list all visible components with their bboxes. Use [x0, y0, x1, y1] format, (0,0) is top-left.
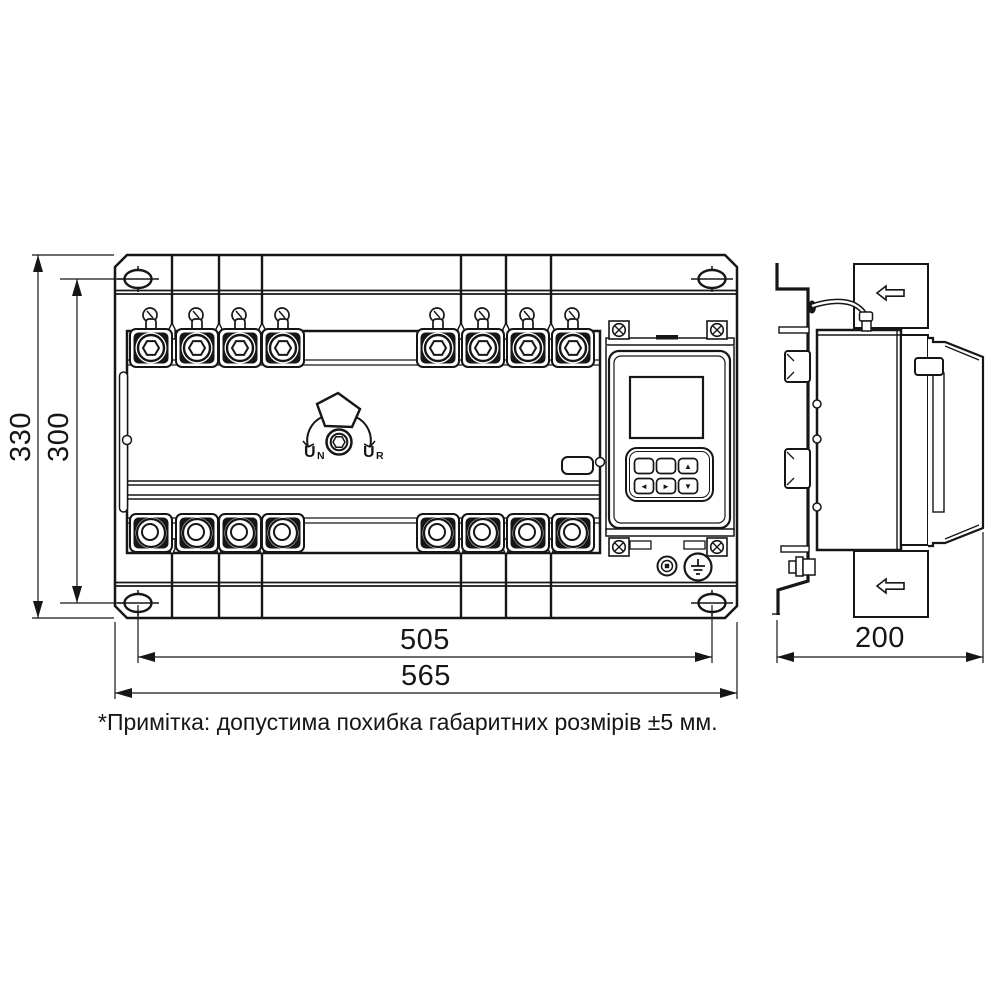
side-view	[772, 263, 983, 617]
screw-icon	[609, 538, 629, 556]
front-view: U N U R	[115, 255, 737, 618]
screw-icon	[707, 321, 727, 339]
terminal-icon	[176, 514, 218, 552]
keypad-button	[635, 459, 654, 474]
mounting-bracket	[772, 263, 815, 615]
terminal-icon	[130, 514, 172, 552]
screw-icon	[609, 321, 629, 339]
dim-label-565: 565	[401, 660, 451, 692]
terminal-icon	[507, 514, 549, 552]
side-body	[813, 330, 928, 550]
terminal-icon	[417, 514, 459, 552]
screw-icon	[707, 538, 727, 556]
edge-bump	[596, 458, 605, 467]
terminal-icon	[262, 514, 304, 552]
key-up-icon: ▲	[684, 462, 692, 471]
dim-label-200: 200	[855, 622, 905, 654]
cover-tab	[915, 358, 943, 375]
edge-bump	[123, 436, 132, 445]
terminal-clamp	[785, 351, 810, 382]
terminal-icon	[552, 514, 594, 552]
knob-label-ur: U	[363, 444, 375, 461]
key-down-icon: ▼	[684, 482, 692, 491]
ats-dimensional-drawing: U N U R	[0, 0, 1000, 1000]
dim-label-300: 300	[43, 412, 75, 462]
dim-label-330: 330	[5, 412, 37, 462]
keypad: ▲ ◄ ► ▼	[626, 448, 713, 501]
terminal-icon	[462, 514, 504, 552]
terminal-icon	[219, 514, 261, 552]
knob-label-ur-sub: R	[376, 450, 384, 462]
dim-label-505: 505	[400, 624, 450, 656]
footnote-text: *Примітка: допустима похибка габаритних …	[98, 709, 718, 735]
keypad-button	[657, 459, 676, 474]
key-right-icon: ►	[662, 482, 670, 491]
technical-drawing-page: U N U R	[0, 0, 1000, 1000]
knob-label-un-sub: N	[317, 450, 325, 462]
key-left-icon: ◄	[640, 482, 648, 491]
indicator-window	[562, 457, 593, 474]
display-screen	[630, 377, 703, 438]
round-button-icon	[658, 557, 677, 576]
module-top-dash	[656, 335, 678, 340]
ground-terminal-icon	[685, 554, 712, 581]
drawing-root: U N U R	[5, 255, 983, 735]
terminal-clamp	[785, 449, 810, 488]
bracket-bolt	[789, 557, 815, 576]
knob-label-un: U	[304, 444, 316, 461]
